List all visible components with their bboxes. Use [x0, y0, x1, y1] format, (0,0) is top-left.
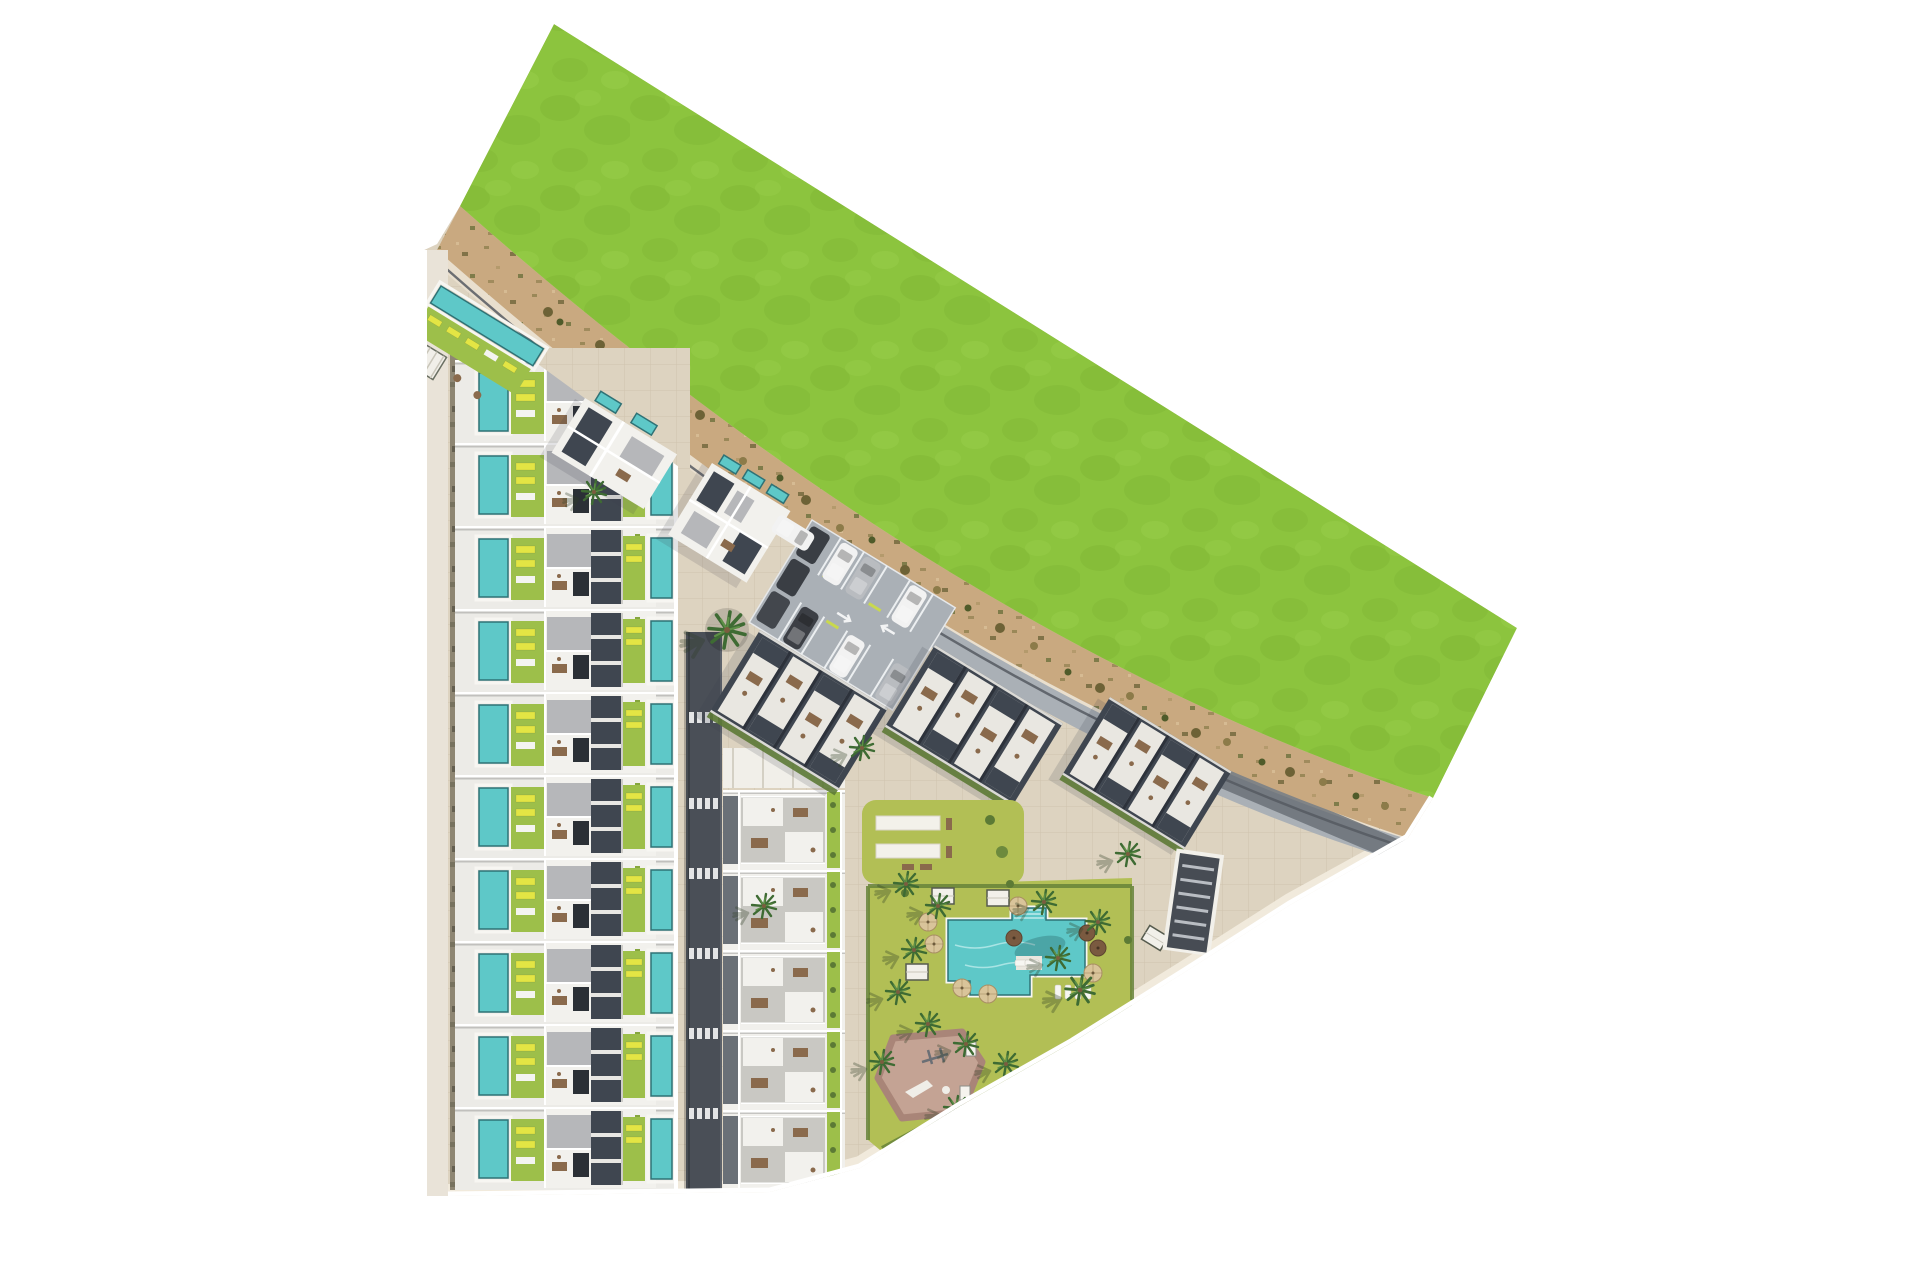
masterplan-image: Aerial masterplan rendering of a residen…: [0, 0, 1920, 1280]
left-outer-sidewalk: [424, 250, 448, 1196]
pergola-slab: [876, 844, 940, 858]
house-row: [455, 941, 678, 1024]
parasol: [979, 985, 997, 1003]
pergola-lawn: Lawn with shade pergolas: [862, 800, 1024, 884]
house-row: [455, 1024, 678, 1107]
house-row: [455, 775, 678, 858]
apartment-unit: [723, 1030, 845, 1110]
house-row: [455, 858, 678, 941]
house-row: [455, 1107, 678, 1190]
apartment-unit: [723, 1110, 845, 1190]
parasol: [1006, 930, 1022, 946]
house-row: [455, 526, 678, 609]
apartment-unit: [723, 950, 845, 1030]
phase-apartment-column: Apartment block with roof terraces: [723, 748, 845, 1190]
parasol: [1090, 940, 1106, 956]
parasol: [953, 979, 971, 997]
pergola-slab: [876, 816, 940, 830]
parasol: [1084, 964, 1102, 982]
house-row: [455, 609, 678, 692]
siteplan-svg: Aerial masterplan rendering of a residen…: [0, 0, 1920, 1280]
parasol: [925, 935, 943, 953]
apartment-unit: [723, 790, 845, 870]
house-row: [455, 692, 678, 775]
